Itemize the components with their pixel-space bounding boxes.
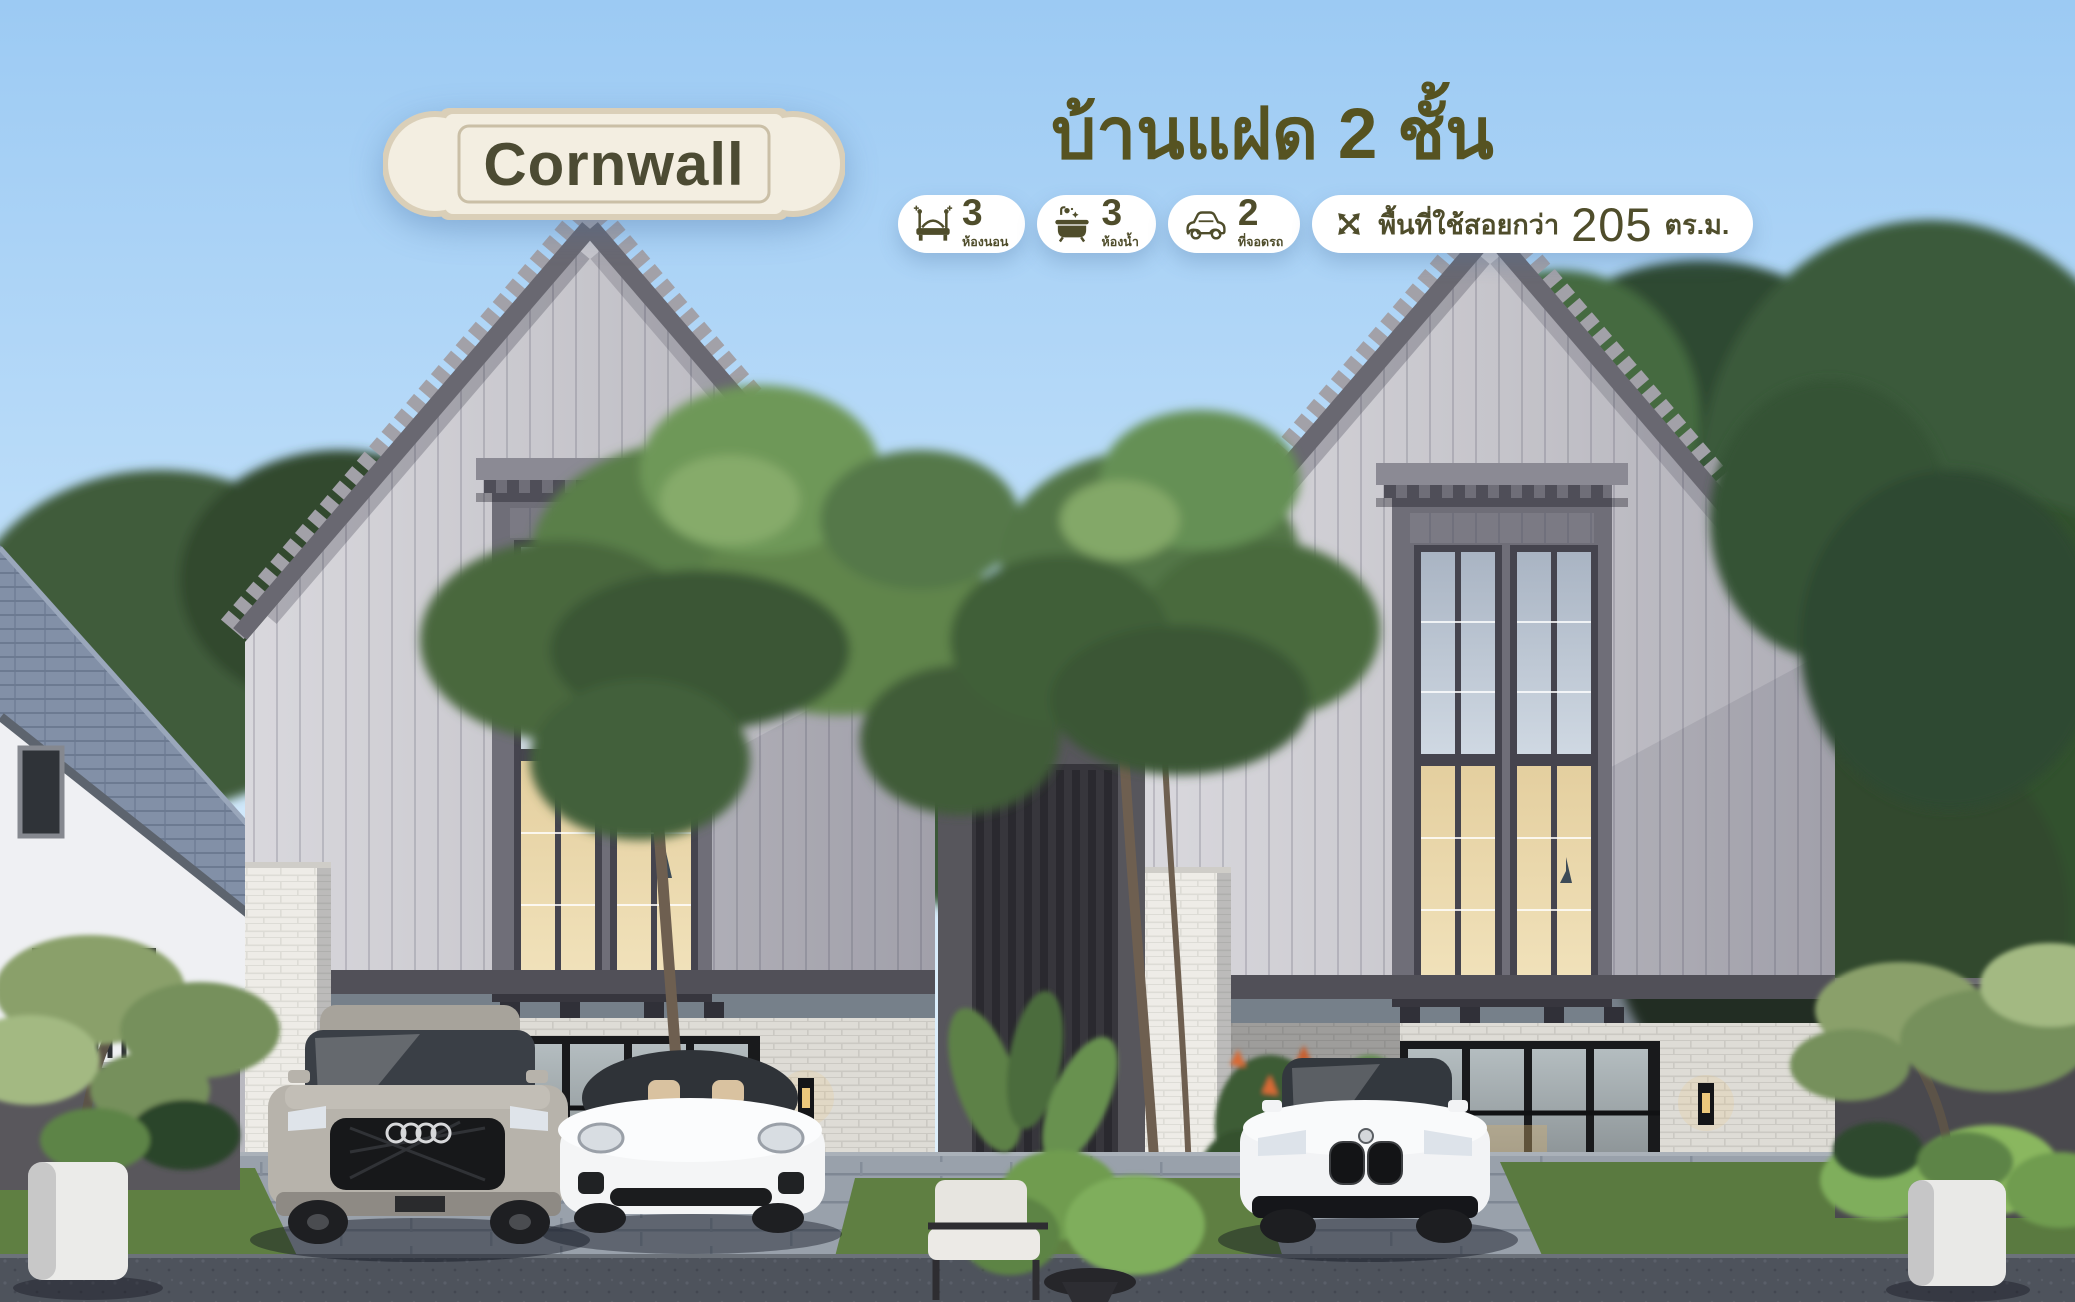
parking-count: 2	[1238, 196, 1259, 229]
car-sports-white	[558, 1050, 825, 1233]
bathrooms-count: 3	[1101, 196, 1122, 229]
area-badge: พื้นที่ใช้สอยกว่า 205 ตร.ม.	[1312, 195, 1753, 253]
bathtub-icon	[1052, 203, 1092, 245]
headline-thai: บ้านแฝด 2 ชั้น	[900, 46, 1645, 176]
area-prefix: พื้นที่ใช้สอยกว่า	[1378, 203, 1559, 246]
bedrooms-label: ห้องนอน	[962, 232, 1008, 252]
project-name: Cornwall	[383, 106, 845, 224]
car-suv-grey	[268, 1005, 568, 1244]
project-name-plaque: Cornwall	[383, 106, 845, 224]
bedrooms-badge: 3 ห้องนอน	[898, 195, 1025, 253]
car-icon	[1183, 205, 1229, 243]
area-value: 205	[1571, 201, 1652, 248]
bed-icon	[913, 203, 953, 245]
expand-arrows-icon	[1332, 207, 1366, 241]
parking-badge: 2 ที่จอดรถ	[1168, 195, 1300, 253]
bathrooms-label: ห้องน้ำ	[1101, 232, 1138, 252]
bathrooms-badge: 3 ห้องน้ำ	[1037, 195, 1155, 253]
area-unit: ตร.ม.	[1665, 203, 1730, 246]
bedrooms-count: 3	[962, 196, 983, 229]
spec-badges: 3 ห้องนอน 3 ห้องน้ำ 2 ที่จอดรถ	[898, 195, 1753, 253]
parking-label: ที่จอดรถ	[1238, 232, 1283, 252]
poster: Cornwall บ้านแฝด 2 ชั้น 3 ห้องนอน	[0, 0, 2075, 1302]
